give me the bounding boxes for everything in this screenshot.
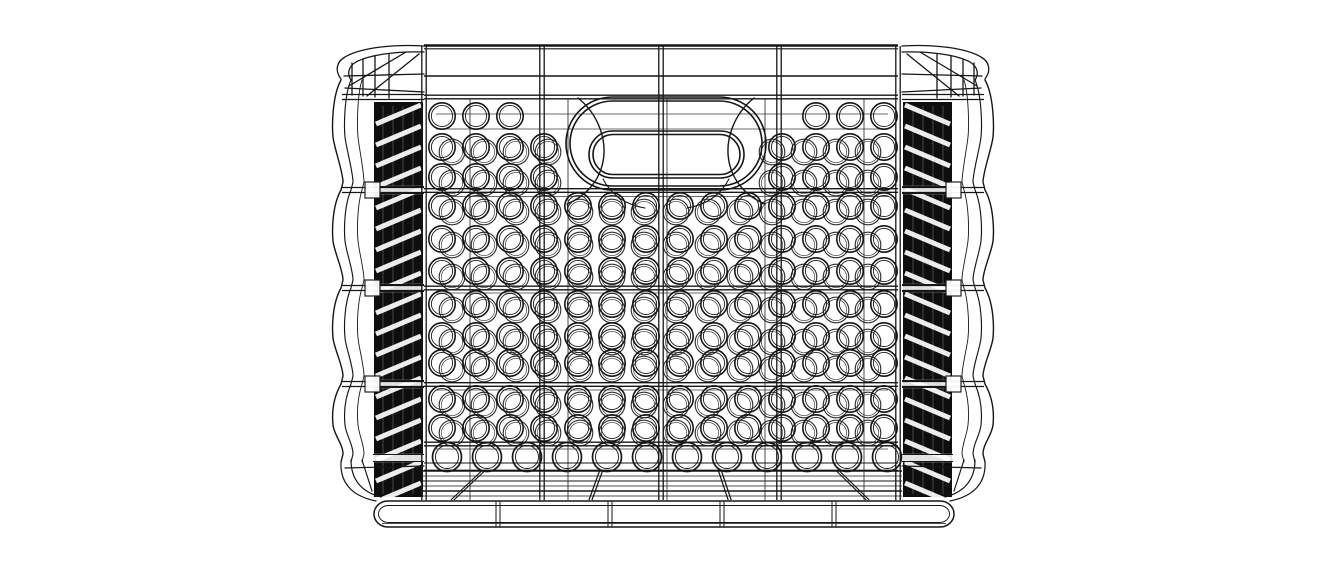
- circle-grid-back: [439, 139, 881, 446]
- base-and-floor: [374, 470, 954, 527]
- left-side-wall: [333, 45, 424, 502]
- crate-wireframe-rendering: [0, 0, 1334, 578]
- right-side-wall: [902, 45, 993, 502]
- render-viewport: [0, 0, 1334, 578]
- base-skirt: [374, 501, 954, 527]
- front-face: [422, 46, 902, 501]
